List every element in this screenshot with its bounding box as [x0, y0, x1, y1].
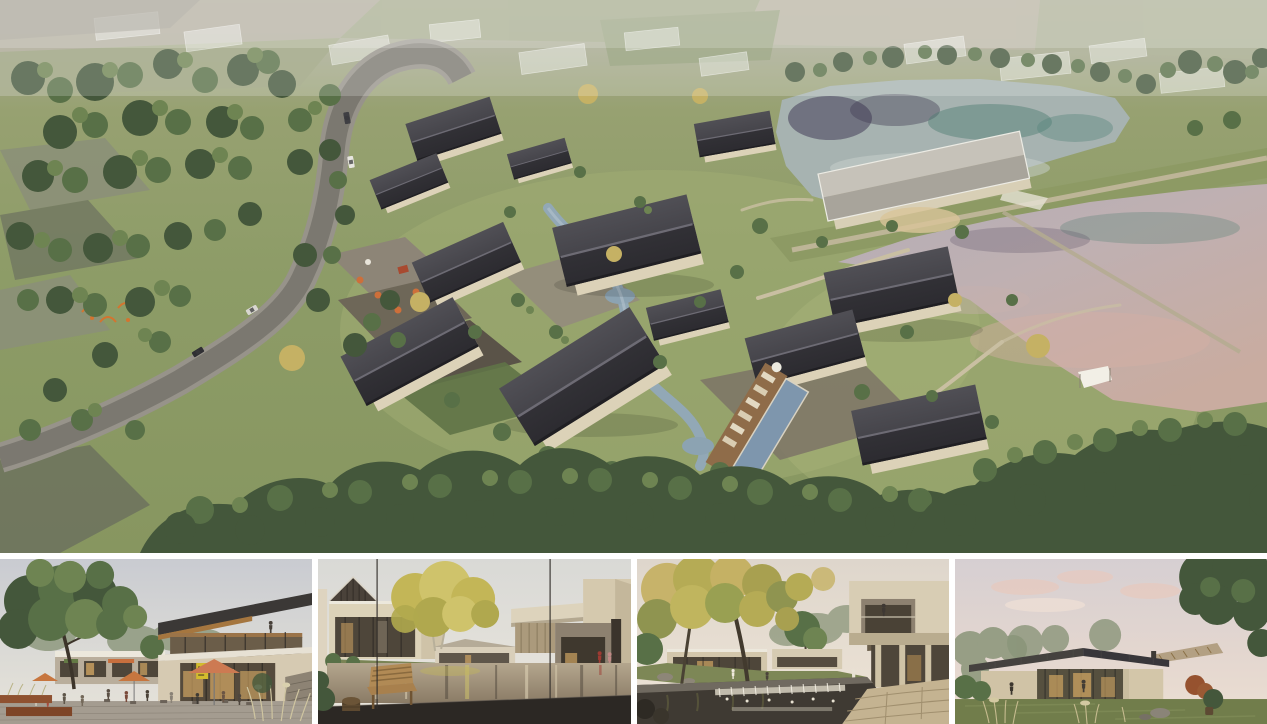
- drum-stool: [342, 697, 360, 711]
- panel-cafe-plaza-svg: Eye-level view of the cafe plaza: a two-…: [0, 559, 312, 724]
- edge-wall: [318, 589, 327, 679]
- stump: [1205, 707, 1213, 715]
- panel-stream-courtyard-svg: Garden courtyard with a stone weir stepp…: [637, 559, 949, 724]
- awning: [108, 659, 134, 663]
- horizon-haze-2: [0, 0, 1267, 48]
- panel-cafe-plaza: Eye-level view of the cafe plaza: a two-…: [0, 559, 312, 724]
- aerial-masterplan-rendering: Bird's-eye view of a courtyard village o…: [0, 0, 1267, 553]
- panel-pond-courtyard: Courtyard reflecting pond seen from a da…: [318, 559, 630, 724]
- distant-wall: [772, 649, 842, 669]
- panel-lake-pavilion: Dusk view of a single-storey glass pavil…: [955, 559, 1267, 724]
- panel-lake-pavilion-svg: Dusk view of a single-storey glass pavil…: [955, 559, 1267, 724]
- vignette-strip: Eye-level view of the cafe plaza: a two-…: [0, 559, 1267, 724]
- aerial-masterplan-svg: Bird's-eye view of a courtyard village o…: [0, 0, 1267, 553]
- panel-stream-courtyard: Garden courtyard with a stone weir stepp…: [637, 559, 949, 724]
- panel-pond-courtyard-svg: Courtyard reflecting pond seen from a da…: [318, 559, 630, 724]
- boulder: [1139, 714, 1151, 720]
- stream-weir: [637, 677, 877, 724]
- presentation-board: Bird's-eye view of a courtyard village o…: [0, 0, 1267, 724]
- boulder: [1150, 708, 1170, 718]
- foreground-rock: [653, 708, 669, 724]
